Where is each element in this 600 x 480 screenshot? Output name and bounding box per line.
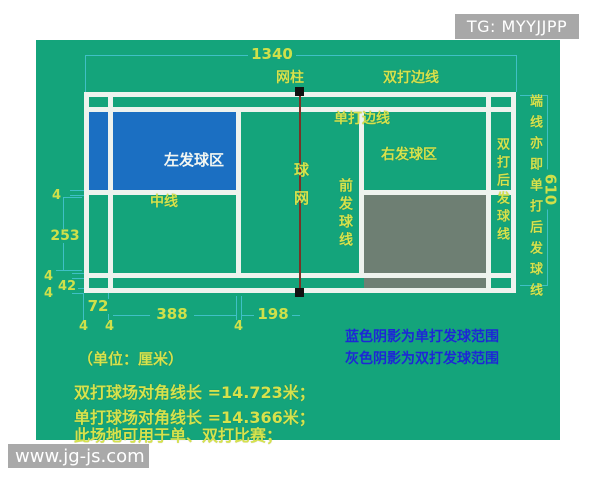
dimension-label-198: 198 [254, 307, 292, 322]
dimension-1340-right-tick [516, 55, 517, 92]
dimension-label-610: 610 [543, 170, 558, 210]
net-post-bottom-marker [295, 288, 304, 297]
net-post-label: 网柱 [276, 71, 304, 86]
front-service-line-width-label: 4 [232, 320, 245, 333]
front-service-line-label: 前发球线 [335, 178, 355, 250]
unit-note: （单位：厘米） [78, 348, 183, 369]
center-line-width-label: 4 [50, 189, 63, 202]
left-service-area-label: 左发球区 [164, 149, 224, 170]
blue-shading-note: 蓝色阴影为单打发球范围 [345, 326, 499, 346]
dimension-label-253: 253 [46, 229, 84, 243]
page-background: TG: MYYJJPP 1340 610 [0, 0, 600, 480]
alley-tick-1 [72, 273, 84, 274]
site-watermark-text: www.jg-js.com [15, 446, 145, 467]
net-label: 球网 [291, 162, 312, 218]
doubles-back-line-width-label: 4 [103, 320, 116, 333]
dimension-label-1340: 1340 [248, 47, 296, 62]
usage-note: 此场地可用于单、双打比赛； [74, 422, 282, 446]
side-alley-width-label: 42 [56, 280, 78, 293]
site-watermark-bar: www.jg-js.com [8, 444, 149, 468]
dimension-line-1340 [85, 55, 517, 56]
doubles-sideline-label: 双打边线 [383, 71, 439, 86]
dimension-label-388: 388 [150, 307, 194, 322]
dimension-1340-left-tick [85, 55, 86, 92]
doubles-back-service-line-label: 双打后发球线 [492, 137, 511, 245]
singles-line-width-label: 4 [42, 270, 55, 283]
center-line-label: 中线 [150, 195, 178, 210]
center-line-width-tick-top [70, 190, 84, 191]
end-line-note-label: 端线亦即单打后发球线 [525, 94, 544, 304]
doubles-diagonal-note: 双打球场对角线长 =14.723米； [74, 379, 315, 403]
net-post-top-marker [295, 87, 304, 96]
outer-line-width-label: 4 [42, 287, 55, 300]
singles-sideline-label: 单打边线 [334, 112, 390, 127]
badminton-court-diagram: 1340 610 253 4 4 42 4 72 4 4 388 198 [36, 40, 560, 440]
dimension-label-72: 72 [84, 299, 112, 314]
gray-shading-note: 灰色阴影为双打发球范围 [345, 348, 499, 368]
tg-watermark-badge: TG: MYYJJPP [455, 14, 579, 39]
dimension-253-bottom-tick [56, 270, 82, 271]
end-line-width-label: 4 [77, 320, 90, 333]
right-service-area-label: 右发球区 [381, 148, 437, 163]
center-line-width-tick-bottom [70, 195, 84, 196]
